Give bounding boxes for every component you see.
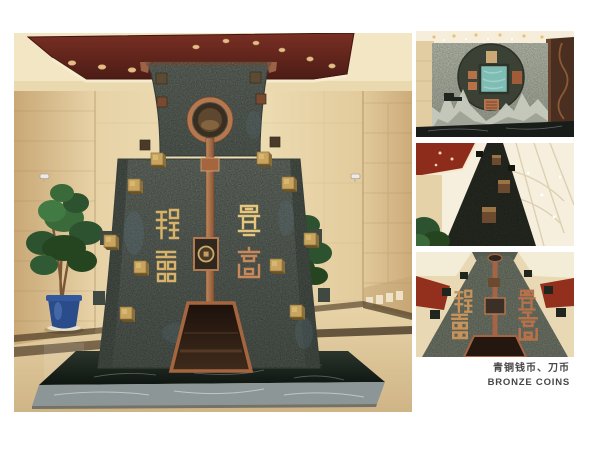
- thumb1-illustration: [416, 31, 574, 137]
- thumb2-illustration: [416, 143, 574, 246]
- portfolio-page: 青铜钱币、刀币 BRONZE COINS: [0, 0, 600, 450]
- thumb-photo-coin-wall: [416, 31, 574, 137]
- niche-opening: [464, 336, 526, 357]
- caption-english: BRONZE COINS: [488, 378, 570, 388]
- side-wall-left: [416, 41, 434, 129]
- caption-chinese: 青铜钱币、刀币: [488, 364, 570, 374]
- thumb-photo-edge-view: [416, 143, 574, 246]
- wood-panel-right: [546, 37, 574, 125]
- copper-ring-hole: [187, 97, 233, 143]
- jade-center: [480, 65, 508, 93]
- caption: 青铜钱币、刀币 BRONZE COINS: [488, 364, 570, 388]
- main-photo: [14, 33, 412, 412]
- thumb3-illustration: [416, 252, 574, 357]
- coin-plaque: [194, 238, 218, 270]
- main-photo-illustration: [14, 33, 412, 412]
- stone-relief: [432, 43, 548, 129]
- thumb-photo-face-view: [416, 252, 574, 357]
